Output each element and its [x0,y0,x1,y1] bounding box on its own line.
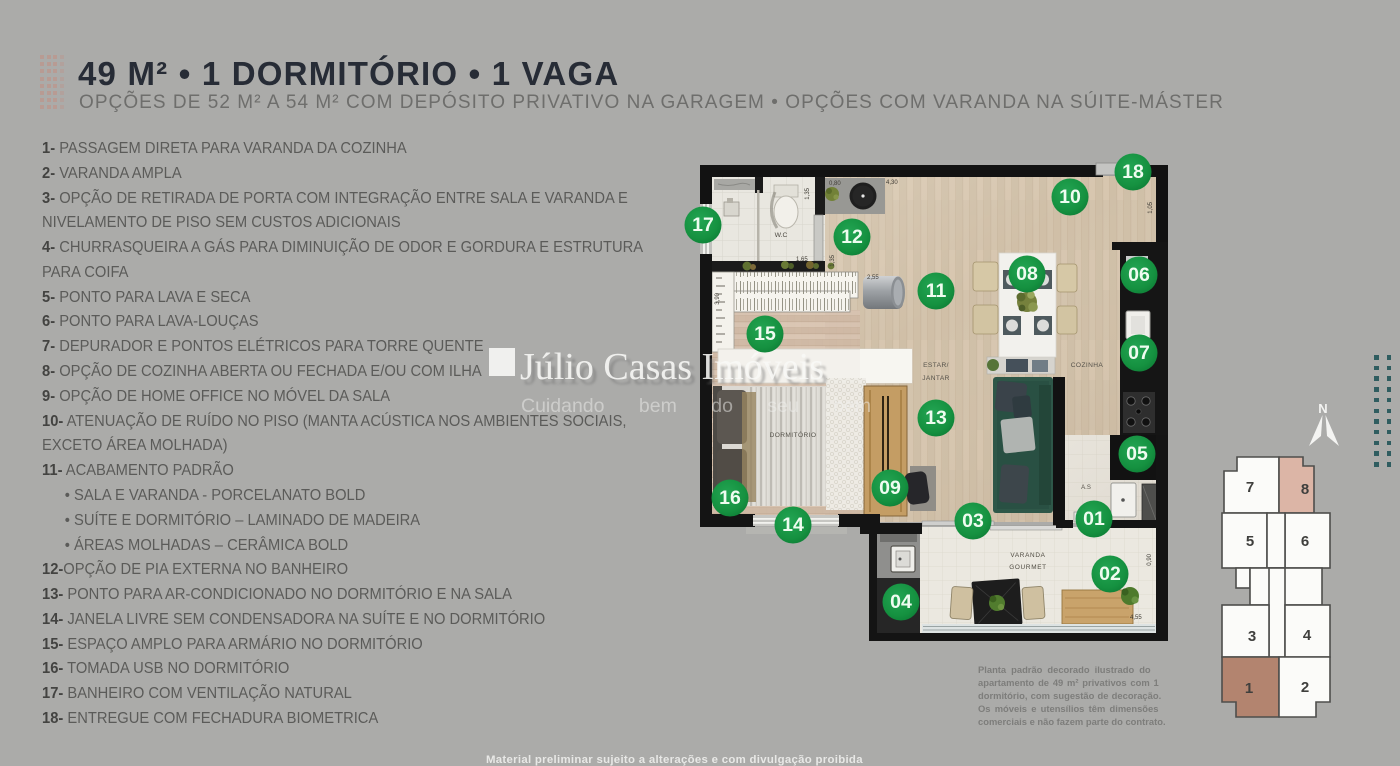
svg-text:4,30: 4,30 [886,180,898,186]
svg-text:N: N [1318,401,1327,416]
svg-text:JANTAR: JANTAR [922,375,950,382]
svg-text:6: 6 [1301,533,1309,550]
svg-text:1,35: 1,35 [805,187,811,199]
svg-text:4: 4 [1303,627,1312,644]
svg-text:16: 16 [719,487,741,509]
svg-text:03: 03 [962,510,984,532]
svg-text:02: 02 [1099,563,1121,585]
svg-text:18: 18 [1122,161,1144,183]
svg-text:DORMITÓRIO: DORMITÓRIO [770,430,817,439]
svg-text:2,55: 2,55 [867,275,879,281]
svg-text:COZINHA: COZINHA [1071,362,1104,369]
svg-text:4,55: 4,55 [1130,615,1142,621]
svg-text:1,35: 1,35 [830,254,836,266]
svg-text:5: 5 [1246,533,1254,550]
svg-text:11: 11 [926,280,947,302]
svg-text:1: 1 [1245,680,1253,697]
svg-text:12: 12 [841,226,863,248]
svg-text:7: 7 [1246,479,1254,496]
svg-text:17: 17 [692,214,714,236]
svg-text:15: 15 [754,323,776,345]
svg-text:13: 13 [925,407,947,429]
svg-text:1,05: 1,05 [1148,201,1154,213]
svg-text:VARANDA: VARANDA [1010,552,1045,559]
svg-text:GOURMET: GOURMET [1009,564,1047,571]
svg-text:08: 08 [1016,263,1038,285]
svg-text:0,80: 0,80 [829,181,841,187]
svg-text:ESTAR/: ESTAR/ [923,362,949,369]
svg-text:2: 2 [1301,679,1309,696]
svg-text:3: 3 [1248,628,1256,645]
svg-text:07: 07 [1128,342,1150,364]
svg-text:14: 14 [782,514,804,536]
svg-text:05: 05 [1126,443,1148,465]
svg-text:09: 09 [879,477,901,499]
svg-text:06: 06 [1128,264,1150,286]
svg-text:3,90: 3,90 [715,292,721,304]
svg-text:04: 04 [890,591,912,613]
svg-text:8: 8 [1301,481,1309,498]
svg-text:01: 01 [1083,508,1105,530]
svg-text:10: 10 [1059,186,1081,208]
svg-text:0,90: 0,90 [1147,553,1153,565]
svg-text:A.S: A.S [1081,485,1091,491]
svg-text:W.C: W.C [775,232,788,239]
svg-text:1,65: 1,65 [796,257,808,263]
